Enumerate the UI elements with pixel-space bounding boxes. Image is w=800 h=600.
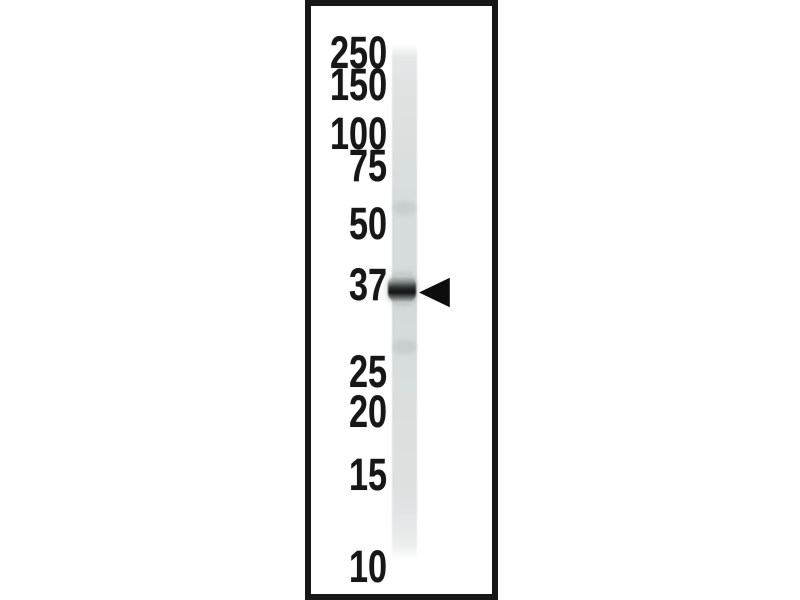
faint-band	[392, 340, 417, 354]
marker-label-20: 20	[349, 389, 387, 434]
marker-label-15: 15	[349, 452, 387, 497]
protein-band	[388, 275, 416, 303]
faint-band	[392, 201, 417, 215]
marker-label-50: 50	[349, 201, 387, 246]
marker-label-37: 37	[349, 262, 387, 307]
marker-label-10: 10	[349, 544, 387, 589]
marker-label-150: 150	[330, 62, 387, 107]
western-blot-figure: 25015010075503725201510	[0, 0, 800, 600]
marker-label-75: 75	[349, 143, 387, 188]
